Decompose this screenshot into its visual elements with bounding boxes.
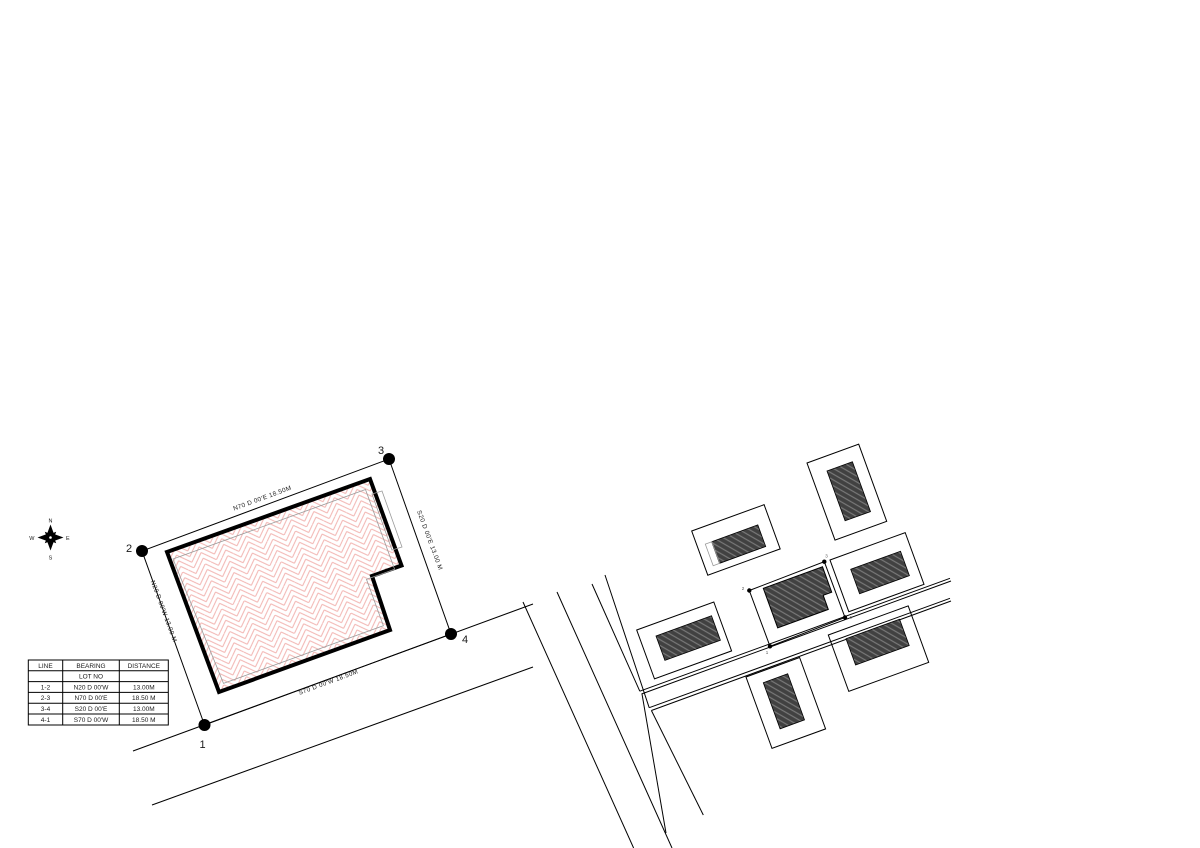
bearing-label-bottom: S70 D 00'W 18.50M — [298, 668, 359, 696]
road-line — [557, 592, 672, 848]
compass-north-label: N — [49, 519, 53, 525]
vicinity-building — [656, 616, 720, 661]
road-line — [651, 711, 703, 816]
table-row: 2-3 N70 D 00'E 18.50 M — [41, 695, 156, 702]
table-row: 4-1 S70 D 00'W 18.50 M — [41, 717, 156, 724]
vicinity-corner-point-4 — [843, 615, 847, 619]
compass-center — [49, 536, 52, 539]
vicinity-corner-point-1 — [768, 644, 772, 648]
svg-text:S20 D 00'E: S20 D 00'E — [75, 706, 108, 713]
table-header-distance: DISTANCE — [128, 663, 161, 670]
corner-point-2 — [136, 545, 148, 557]
svg-text:N70 D 00'E: N70 D 00'E — [74, 695, 108, 702]
vicinity-corner-point-3 — [822, 560, 826, 564]
svg-text:4-1: 4-1 — [41, 717, 51, 724]
svg-text:18.50 M: 18.50 M — [132, 695, 156, 702]
vicinity-building — [827, 462, 871, 521]
compass-south-label: S — [49, 556, 53, 562]
road-line — [605, 575, 649, 708]
svg-text:3-4: 3-4 — [41, 706, 51, 713]
corner-point-3 — [383, 453, 395, 465]
svg-text:N20 D 00'W: N20 D 00'W — [74, 684, 110, 691]
vicinity-map: 2 3 4 1 — [523, 444, 951, 848]
vicinity-lot-top — [807, 444, 887, 540]
svg-text:S70 D 00'W: S70 D 00'W — [74, 717, 109, 724]
compass-west-label: W — [29, 536, 35, 542]
corner-label-4: 4 — [462, 634, 468, 646]
compass-rose: N S W E — [29, 519, 70, 562]
vicinity-subject-building — [763, 567, 831, 628]
corner-point-4 — [445, 628, 457, 640]
vicinity-corner-label-3: 3 — [825, 554, 828, 559]
vicinity-building — [851, 551, 910, 594]
svg-text:13.00M: 13.00M — [133, 684, 155, 691]
vicinity-building — [846, 619, 909, 665]
compass-east-label: E — [66, 536, 70, 542]
svg-text:1-2: 1-2 — [41, 684, 51, 691]
corner-point-1 — [199, 719, 211, 731]
table-row: 3-4 S20 D 00'E 13.00M — [41, 706, 155, 713]
svg-text:13.00M: 13.00M — [133, 706, 155, 713]
lot-data-table: LINE BEARING DISTANCE LOT NO 1-2 N20 D 0… — [28, 660, 168, 725]
vicinity-lot-left — [637, 602, 732, 679]
vicinity-building — [763, 674, 804, 729]
vicinity-corner-label-1: 1 — [766, 650, 769, 655]
corner-label-2: 2 — [126, 543, 132, 555]
bearing-label-left: N20 D 00'W 13.00 M — [149, 580, 178, 644]
vicinity-lot-upper-middle — [692, 505, 781, 576]
road-edge-line — [152, 667, 533, 805]
vicinity-roads — [523, 575, 951, 848]
survey-drawing: 1 2 3 4 N70 D 00'E 18.50M S20 D 00'E 13.… — [0, 0, 1200, 848]
bearing-label-right: S20 D 00'E 13.00 M — [415, 510, 444, 572]
corner-label-3: 3 — [378, 445, 384, 457]
drawing-canvas: 1 2 3 4 N70 D 00'E 18.50M S20 D 00'E 13.… — [0, 0, 1200, 848]
vicinity-corner-label-2: 2 — [742, 586, 745, 591]
vicinity-corner-point-2 — [747, 588, 751, 592]
corner-label-1: 1 — [199, 739, 205, 751]
table-header-bearing: BEARING — [76, 663, 105, 670]
road-line — [592, 584, 640, 691]
vicinity-lot-right — [830, 533, 924, 612]
table-subheader-lot-no: LOT NO — [79, 674, 103, 681]
table-header-line: LINE — [38, 663, 53, 670]
table-row: 1-2 N20 D 00'W 13.00M — [41, 684, 155, 691]
svg-text:2-3: 2-3 — [41, 695, 51, 702]
building-footprint — [167, 479, 402, 692]
site-plan: 1 2 3 4 N70 D 00'E 18.50M S20 D 00'E 13.… — [126, 445, 533, 805]
svg-text:18.50 M: 18.50 M — [132, 717, 156, 724]
